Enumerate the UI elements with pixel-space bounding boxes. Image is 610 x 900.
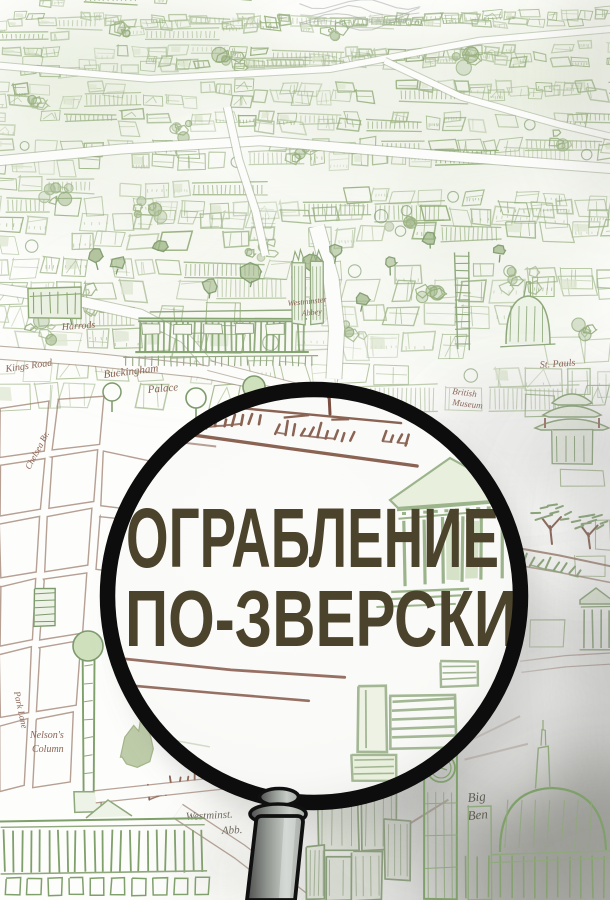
svg-text:Big: Big xyxy=(467,788,487,805)
svg-text:Column: Column xyxy=(32,744,64,755)
svg-text:ПО-ЗВЕРСКИ: ПО-ЗВЕРСКИ xyxy=(125,574,517,663)
svg-text:Ben: Ben xyxy=(467,806,488,823)
svg-text:ОГРАБЛЕНИЕ: ОГРАБЛЕНИЕ xyxy=(126,491,499,585)
svg-text:Nelson's: Nelson's xyxy=(29,730,64,741)
